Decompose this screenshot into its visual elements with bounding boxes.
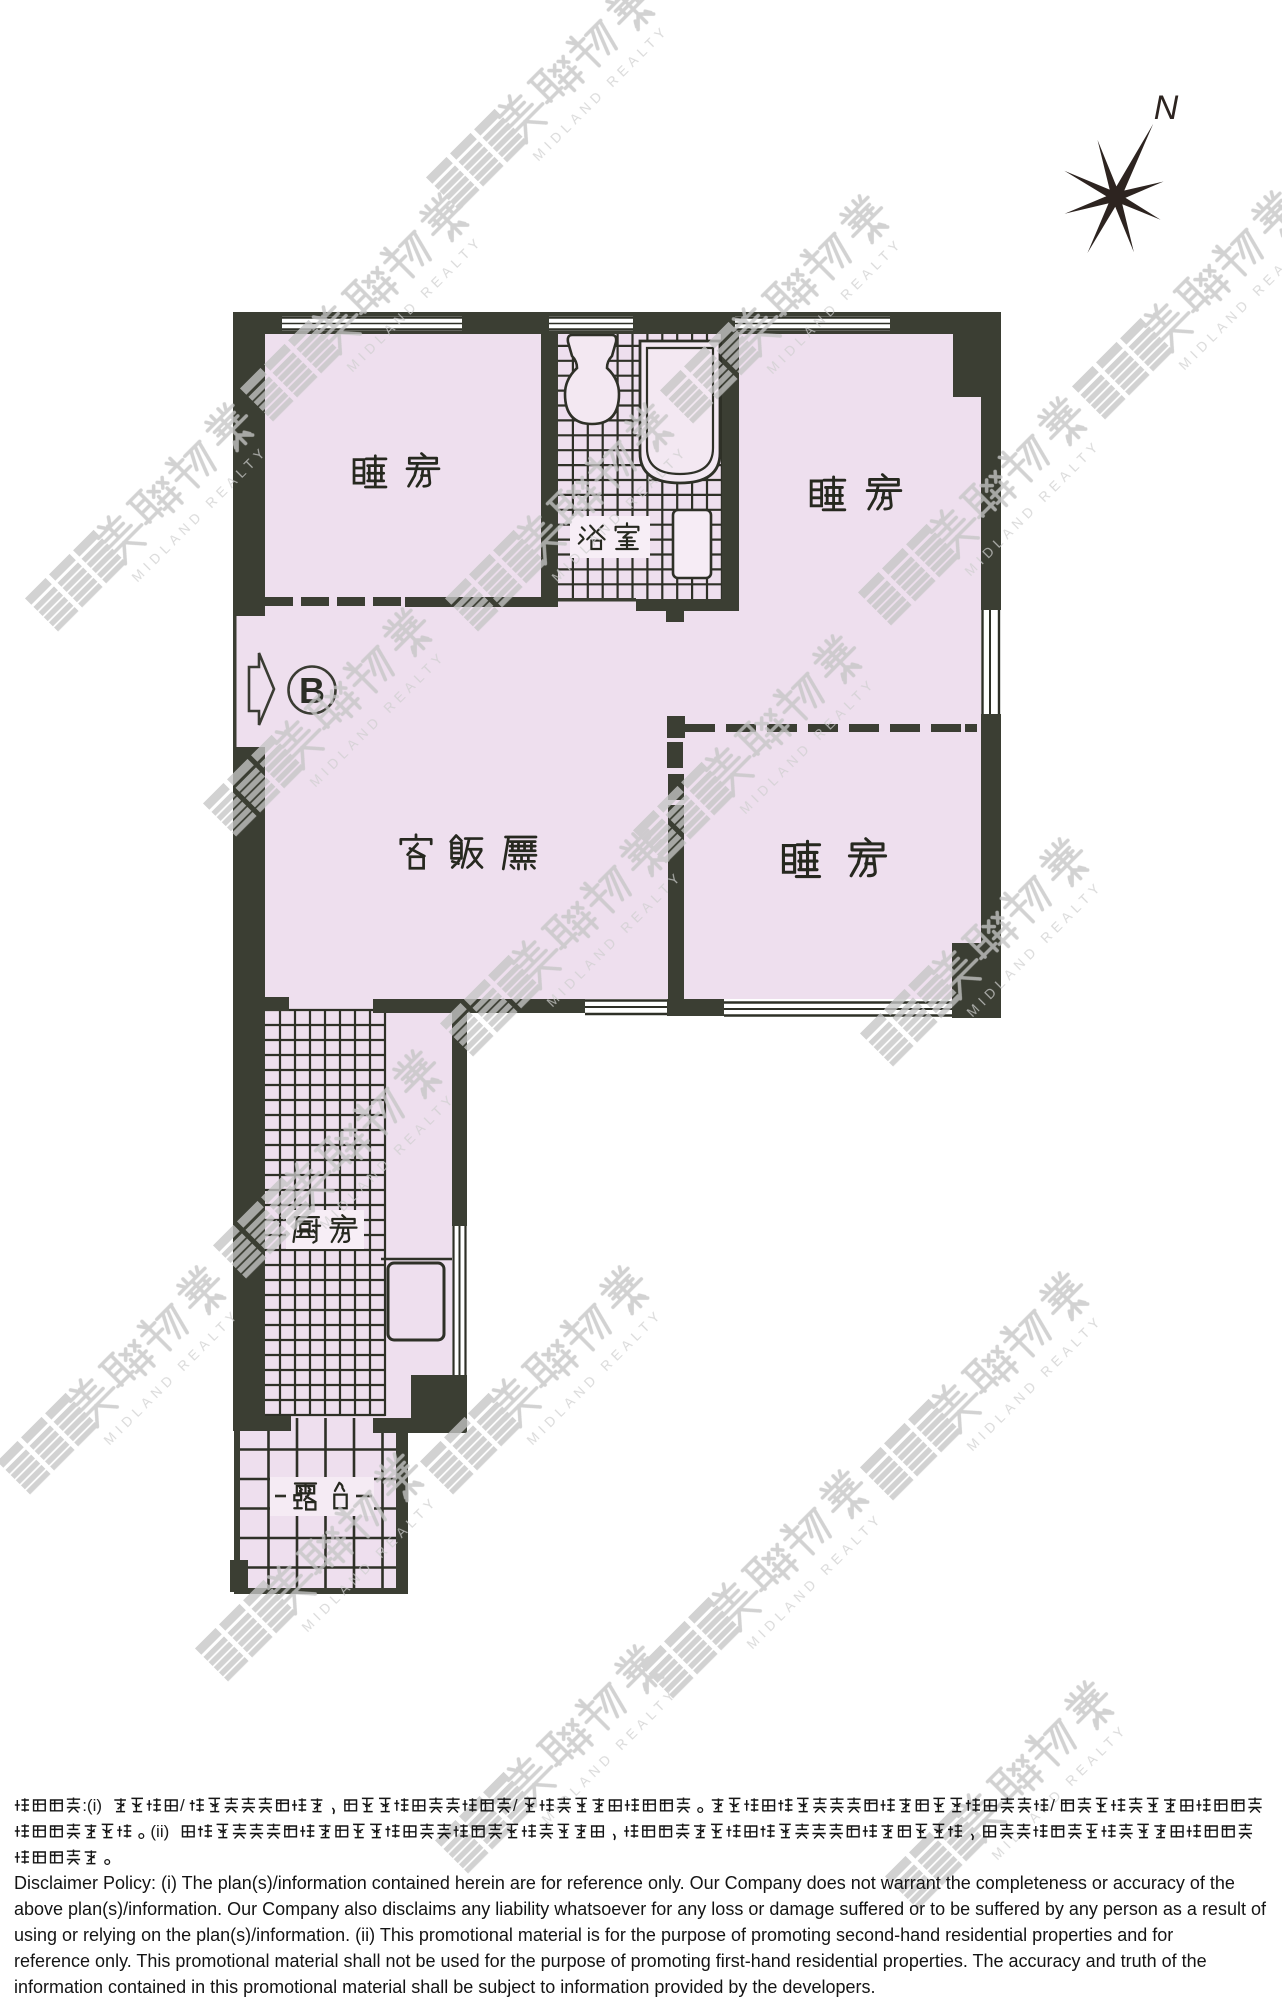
svg-text:/: /: [513, 1796, 518, 1815]
svg-text:/: /: [1050, 1796, 1055, 1815]
svg-text::(i): :(i): [82, 1796, 102, 1815]
svg-text:(ii): (ii): [150, 1822, 169, 1841]
svg-text:N: N: [1154, 89, 1179, 127]
svg-text:/: /: [180, 1796, 185, 1815]
